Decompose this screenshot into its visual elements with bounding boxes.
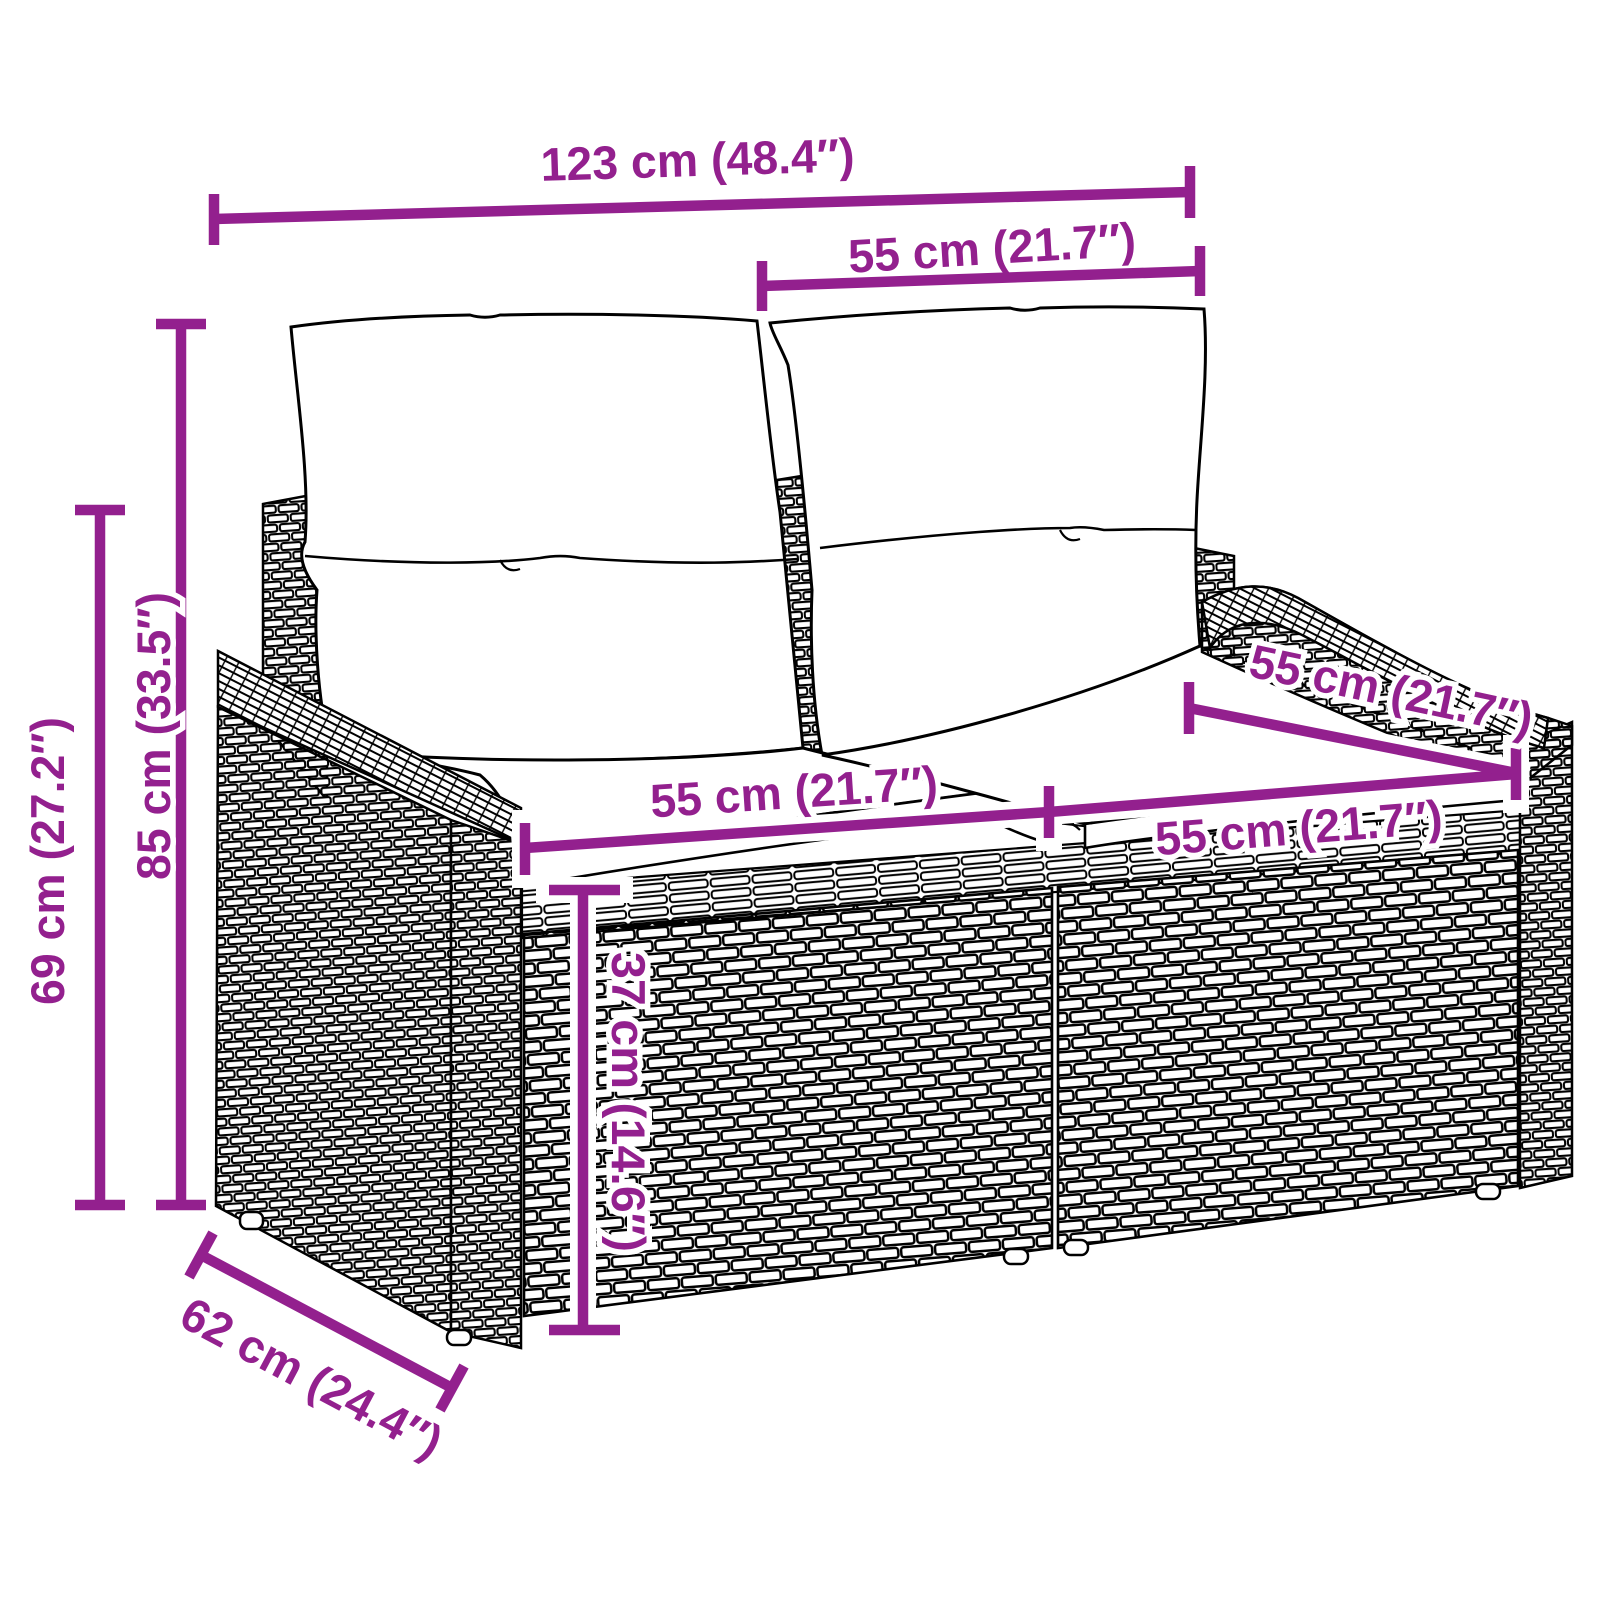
svg-text:85 cm (33.5″): 85 cm (33.5″) xyxy=(127,592,180,880)
svg-text:123 cm (48.4″): 123 cm (48.4″) xyxy=(540,128,856,191)
svg-text:69 cm (27.2″): 69 cm (27.2″) xyxy=(21,717,74,1005)
svg-text:37 cm (14.6″): 37 cm (14.6″) xyxy=(602,952,655,1252)
